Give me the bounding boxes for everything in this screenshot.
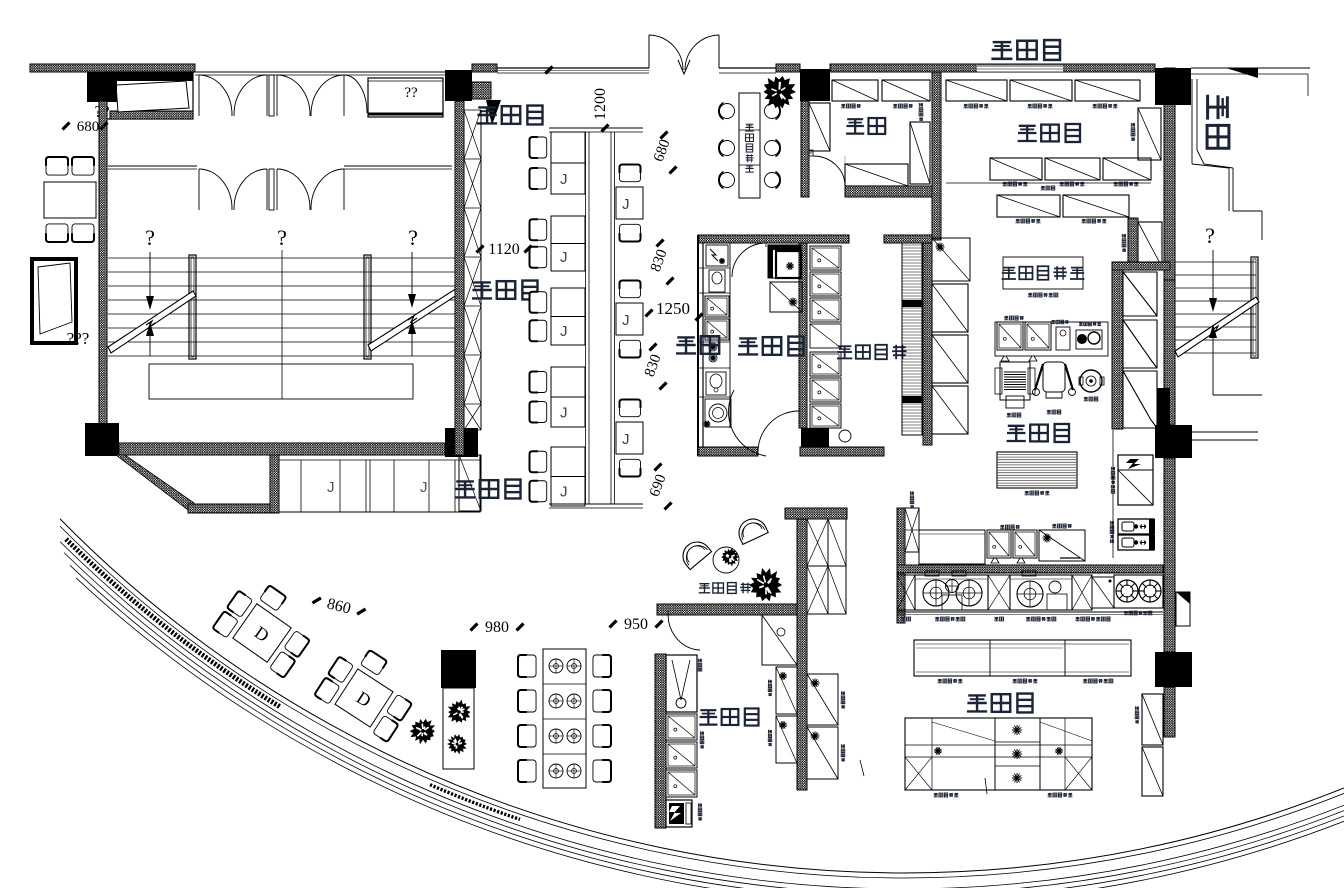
svg-text:1120: 1120 [488, 241, 519, 258]
svg-text:1200: 1200 [592, 88, 609, 120]
svg-text:??: ?? [404, 85, 418, 101]
svg-text:950: 950 [624, 616, 648, 633]
svg-text:J: J [560, 404, 568, 421]
svg-text:J: J [420, 479, 428, 496]
svg-text:?: ? [408, 225, 418, 250]
svg-text:1250: 1250 [656, 299, 690, 318]
svg-text:?: ? [1205, 223, 1215, 248]
svg-text:J: J [560, 171, 568, 188]
svg-text:???: ??? [67, 329, 90, 348]
svg-text:J: J [560, 249, 568, 266]
svg-text:J: J [622, 431, 630, 448]
svg-text:980: 980 [485, 619, 509, 636]
svg-text:J: J [622, 312, 630, 329]
svg-text:?: ? [277, 225, 287, 250]
svg-text:J: J [327, 479, 335, 496]
svg-text:680: 680 [77, 119, 100, 135]
svg-text:J: J [622, 196, 630, 213]
svg-text:J: J [560, 323, 568, 340]
svg-text:J: J [560, 484, 568, 501]
svg-text:?: ? [145, 225, 155, 250]
